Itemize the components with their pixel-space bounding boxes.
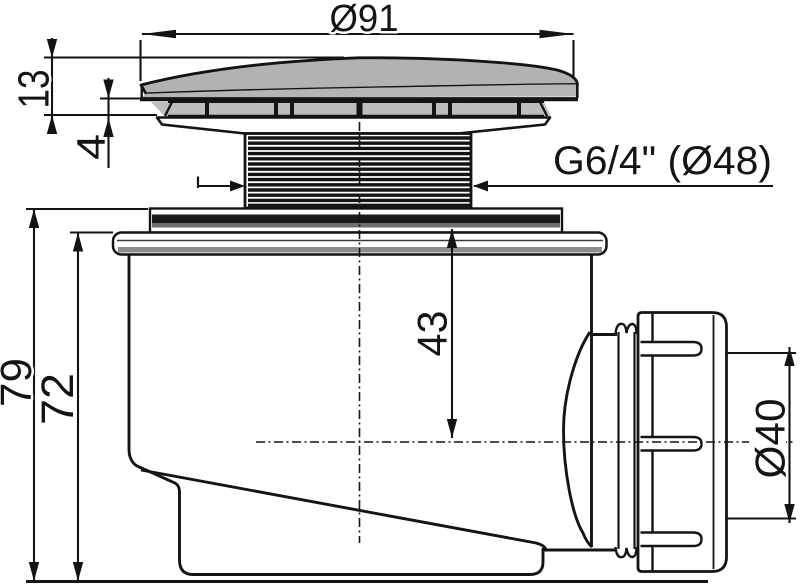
svg-text:43: 43 [409, 311, 456, 357]
svg-text:Ø40: Ø40 [747, 399, 794, 479]
svg-text:13: 13 [10, 70, 59, 109]
svg-text:G6/4" (Ø48): G6/4" (Ø48) [553, 139, 772, 183]
svg-text:Ø91: Ø91 [330, 0, 399, 40]
svg-text:4: 4 [70, 134, 114, 160]
svg-text:72: 72 [32, 373, 83, 425]
